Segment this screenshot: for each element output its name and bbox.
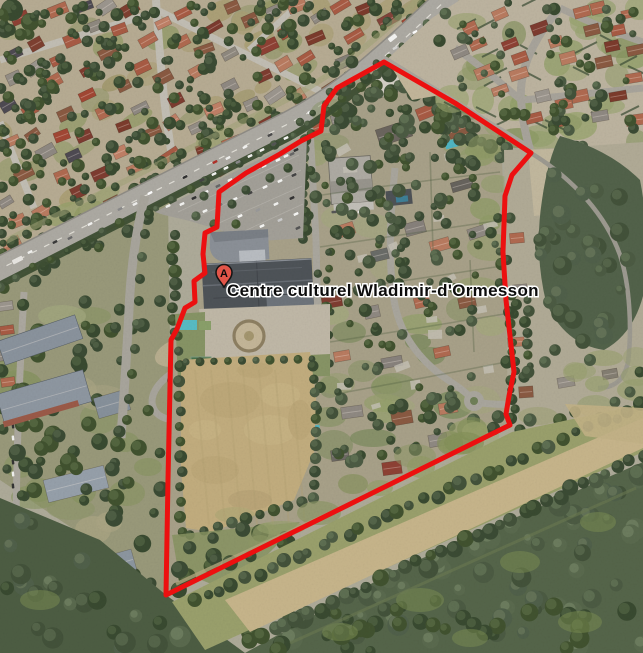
svg-text:A: A — [220, 268, 228, 280]
svg-text:Centre culturel Wladimir-d'Or: Centre culturel Wladimir-d'Ormesson — [227, 281, 539, 300]
